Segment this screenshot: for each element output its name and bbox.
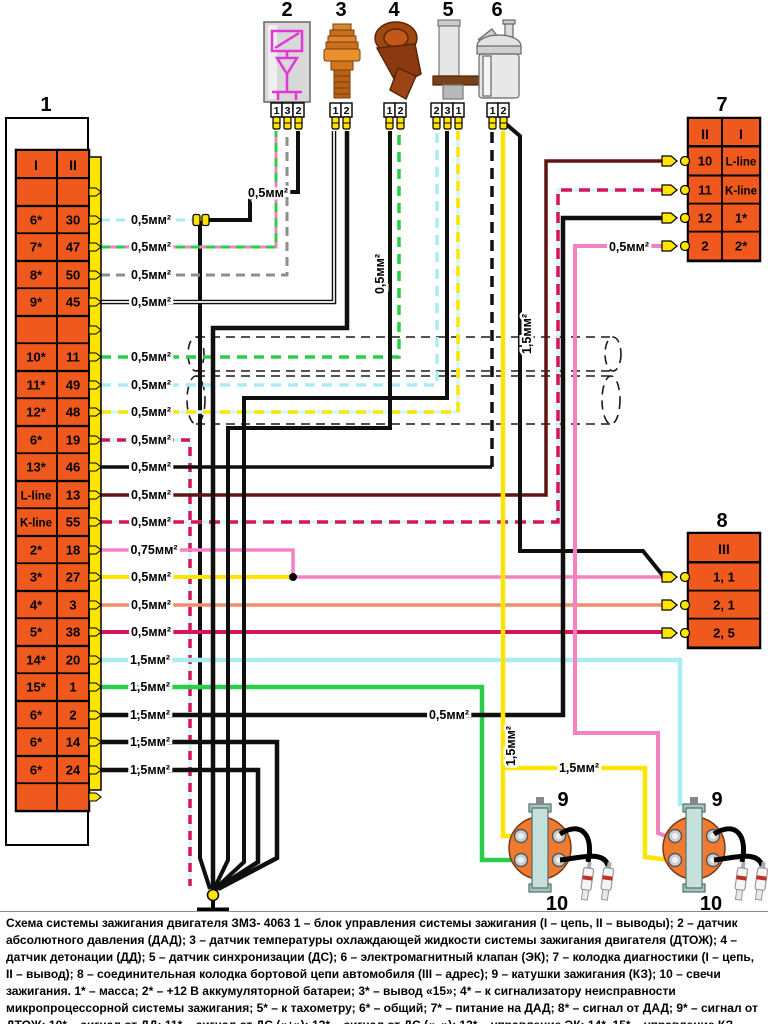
pin-number: 24 (66, 763, 81, 778)
block8-row: 1, 1 (688, 563, 760, 592)
junction-dot (289, 573, 297, 581)
sensor-connector: 231 (431, 103, 464, 129)
wire-gauge-label: 0,75мм² (131, 543, 178, 557)
pin-number: 11 (698, 183, 712, 198)
pin-number: 1 (274, 105, 280, 117)
pl servug-tip (601, 889, 608, 900)
wire-gauge-label: 0,5мм² (131, 268, 171, 282)
pin-number: 45 (66, 295, 80, 310)
pin-number: 30 (66, 213, 80, 228)
wire-block7-pin2-pink (575, 246, 668, 837)
terminal-arrow (662, 628, 677, 638)
block7-row: 121* (688, 204, 760, 233)
pin-number: 14 (66, 735, 81, 750)
terminal-bullet-icon (662, 628, 690, 638)
block1-row: 9*45 (16, 288, 89, 316)
block1-row (16, 316, 89, 344)
block1-row (16, 178, 89, 206)
circuit-label: 6* (30, 763, 43, 778)
block1-row: 6*19 (16, 426, 89, 454)
sensor-dad-image (264, 22, 310, 102)
wire-gauge-label: 0,5мм² (131, 625, 171, 639)
wire-gauge-label: 1,5мм² (130, 680, 170, 694)
ignition-coil (509, 797, 615, 900)
wire-gauge-label: 1,5мм² (130, 708, 170, 722)
circuit-label: K-line (20, 518, 52, 530)
terminal-bullet-icon (662, 185, 690, 195)
coil-knob (536, 797, 544, 804)
pin-number: 47 (66, 240, 80, 255)
circuit-label: 9* (30, 295, 43, 310)
block1-row: 12*48 (16, 398, 89, 426)
block7-rows: III10L-line11K-line121*22* (688, 118, 760, 260)
wire-gauge-label: 0,5мм² (131, 350, 171, 364)
sensor-number: 2 (281, 0, 292, 21)
coil-number: 9 (557, 789, 568, 811)
terminal-ring (681, 242, 690, 251)
sensor-ek-image (477, 20, 521, 98)
sensor-dtozh-image (324, 24, 360, 98)
pin-number: 2 (501, 105, 507, 117)
block1-row: 10*11 (16, 343, 89, 371)
pin-number: 19 (66, 433, 80, 448)
row-cell (16, 178, 89, 206)
pin-number: 1 (69, 680, 76, 695)
wire-gauge-label: 0,5мм² (131, 488, 171, 502)
row-cell (16, 591, 89, 619)
block1-rows: III6*307*478*509*4510*1111*4912*486*1913… (16, 150, 89, 811)
pl servug-tip (755, 889, 762, 900)
wire-gauge-label: 1,5мм² (130, 735, 170, 749)
pin-number: 38 (66, 625, 80, 640)
sensor-ds-image (433, 20, 483, 99)
block1-row: 3*27 (16, 563, 89, 591)
sheath-tube-icon (188, 337, 621, 371)
circuit-label: 4* (30, 598, 43, 613)
ignition-coil (663, 797, 768, 900)
wire-gauge-label: 1,5мм² (130, 653, 170, 667)
terminal-arrow (662, 572, 677, 582)
wire-gauge-label: 1,5мм² (130, 763, 170, 777)
coil-terminal-center (518, 857, 524, 863)
wire-joint-to-ground (200, 221, 210, 889)
wire-s5-ground (215, 131, 447, 889)
wiring-diagram: 1 III6*307*478*509*4510*1111*4912*486*19… (0, 0, 768, 1024)
pin-number: 1 (456, 105, 462, 117)
block1-row: 11*49 (16, 371, 89, 399)
terminal-ring (681, 601, 690, 610)
block1-row: 8*50 (16, 261, 89, 289)
block1-row: 6*14 (16, 728, 89, 756)
circuit-label: 6* (30, 433, 43, 448)
coil-core (532, 808, 548, 888)
circuit-label: 12* (26, 405, 46, 420)
sensor-number: 6 (491, 0, 502, 21)
pin-number: 55 (66, 515, 80, 530)
address-label: 2, 1 (713, 598, 735, 613)
plug-wire (560, 856, 608, 866)
pin-number: 48 (66, 405, 80, 420)
plug-wire (714, 856, 762, 866)
terminal-ring (681, 214, 690, 223)
pin-number: 20 (66, 653, 80, 668)
sensor-connector: 12 (384, 103, 406, 129)
circuit-label: 2* (30, 543, 43, 558)
terminal-arrow (662, 600, 677, 610)
address-label: 2, 5 (713, 626, 735, 641)
block7-col1-header: II (701, 126, 709, 142)
block1-row: L-line13 (16, 481, 89, 509)
terminal-arrow (662, 185, 677, 195)
ignition-coils: 910910 (509, 789, 768, 915)
terminal-ring (681, 629, 690, 638)
wire-gauge-label: 0,5мм² (131, 515, 171, 529)
pin-number: 3 (69, 598, 76, 613)
block1-col2-header: II (69, 157, 77, 173)
wire-gauge-label: 0,5мм² (131, 378, 171, 392)
inline-connector-icon (193, 215, 200, 226)
pin-number: 1 (490, 105, 496, 117)
block1-row: 6*24 (16, 756, 89, 784)
circuit-label: 6* (30, 213, 43, 228)
block1-header-cell (16, 150, 89, 178)
block1-row: 15*1 (16, 673, 89, 701)
circuit-label: 10* (26, 350, 46, 365)
coil-terminal-center (518, 833, 524, 839)
block7-row: 22* (688, 232, 760, 261)
wire-s3-ground (213, 131, 347, 889)
spark-plug-icon (733, 861, 748, 900)
block7-header: III (688, 118, 760, 146)
block1-row: 6*2 (16, 701, 89, 729)
terminal-ring (681, 186, 690, 195)
pin-number: 2 (398, 105, 404, 117)
sensor-connector: 12 (487, 103, 509, 129)
wire-gauge-label: 0,5мм² (609, 240, 649, 254)
wire-gauge-label: 0,5мм² (131, 405, 171, 419)
row-cell (16, 783, 89, 811)
pin-number: 11 (66, 350, 80, 365)
coil-core (686, 808, 702, 888)
wire-2-18 (101, 550, 664, 577)
terminal-bullet-icon (662, 156, 690, 166)
wire-gauge-label: 0,5мм² (131, 213, 171, 227)
terminal-arrow (662, 156, 677, 166)
block8-row: 2, 5 (688, 619, 760, 648)
pin-number: 1 (333, 105, 339, 117)
circuit-label: 6* (30, 735, 43, 750)
block7-row: 10L-line (688, 147, 760, 176)
pin-number: 2 (296, 105, 302, 117)
circuit-label: L-line (726, 157, 757, 169)
address-label: 1, 1 (713, 570, 735, 585)
coil-number: 9 (711, 789, 722, 811)
pin-number: 12 (698, 211, 712, 226)
terminal-arrow (662, 213, 677, 223)
terminal-bullet-icon (662, 213, 690, 223)
wire-gauge-label: 1,5мм² (559, 761, 599, 775)
coil-terminal-center (672, 857, 678, 863)
block1-col1-header: I (34, 157, 38, 173)
coil-knob (690, 797, 698, 804)
pl servug-tip (581, 889, 588, 900)
circuit-label: 3* (30, 570, 43, 585)
spark-plug-icon (599, 861, 614, 900)
caption-text: Схема системы зажигания двигателя ЗМЗ- 4… (0, 911, 768, 1024)
wire-gauge-label: 0,5мм² (131, 460, 171, 474)
wire-gauge-label: 0,5мм² (131, 240, 171, 254)
block7-number: 7 (716, 94, 727, 116)
pin-number: 10 (698, 154, 712, 169)
pin-number: 13 (66, 488, 80, 503)
pin-number: 2 (701, 239, 708, 254)
wire-gauge-label: 1,5мм² (504, 726, 518, 766)
circuit-label: 6* (30, 708, 43, 723)
circuit-label: 8* (30, 268, 43, 283)
block1-row: 5*38 (16, 618, 89, 646)
block1-row: 4*3 (16, 591, 89, 619)
right-block-terminals (662, 156, 690, 638)
pin-number: 1 (387, 105, 393, 117)
block8-col-header: III (718, 541, 730, 557)
terminal-bullet-icon (662, 572, 690, 582)
wire-s4-ground (214, 131, 390, 889)
block1-row: K-line55 (16, 508, 89, 536)
block8-header: III (688, 533, 760, 562)
sensor-connector: 132 (271, 103, 304, 129)
terminal-icon (89, 793, 101, 801)
wire-8-50 (101, 131, 287, 275)
circuit-label: 1* (735, 211, 748, 226)
block1-row: 13*46 (16, 453, 89, 481)
spark-plug-icon (753, 861, 768, 900)
circuit-label: 7* (30, 240, 43, 255)
terminal-bullet-icon (662, 600, 690, 610)
pin-number: 49 (66, 378, 80, 393)
block1-row: 2*18 (16, 536, 89, 564)
circuit-label: 11* (27, 378, 47, 393)
block8-row: 2, 1 (688, 591, 760, 620)
pin-number: 2 (69, 708, 76, 723)
wire-gauge-label: 0,5мм² (131, 433, 171, 447)
terminal-ring (681, 157, 690, 166)
pin-number: 3 (445, 105, 451, 117)
circuit-label: K-line (725, 186, 757, 198)
block7-row: 11K-line (688, 176, 760, 205)
pin-number: 3 (285, 105, 291, 117)
circuit-label: 13* (26, 460, 46, 475)
row-cell (16, 701, 89, 729)
wire-gauge-label: 1,5мм² (520, 314, 534, 354)
sensor-dd-image (375, 22, 421, 99)
row-cell (16, 316, 89, 344)
wire-s2-pin2-ground (202, 131, 298, 220)
circuit-label: L-line (21, 491, 52, 503)
block1-number: 1 (40, 94, 51, 116)
terminal-bullet-icon (662, 241, 690, 251)
wire-gauge-label: 0,5мм² (131, 598, 171, 612)
block1-header: III (16, 150, 89, 178)
pin-number: 2 (344, 105, 350, 117)
block8-rows: III1, 12, 12, 5 (688, 533, 760, 647)
wire-l-line (101, 161, 664, 495)
diagram-canvas: 1 III6*307*478*509*4510*1111*4912*486*19… (0, 0, 768, 1024)
pin-number: 2 (434, 105, 440, 117)
block8-number: 8 (716, 510, 727, 532)
pin-number: 18 (66, 543, 80, 558)
circuit-label: 5* (30, 625, 43, 640)
sensor-number: 4 (388, 0, 400, 21)
pin-number: 46 (66, 460, 80, 475)
pin-number: 27 (66, 570, 80, 585)
block1-row (16, 783, 89, 811)
sensor-number: 3 (335, 0, 346, 21)
cell (688, 232, 760, 261)
wire-gauge-label: 0,5мм² (429, 708, 469, 722)
block1-row: 14*20 (16, 646, 89, 674)
block1-row: 7*47 (16, 233, 89, 261)
wire-gauge-label: 0,5мм² (248, 186, 288, 200)
circuit-label: 14* (26, 653, 46, 668)
sensor-number: 5 (442, 0, 453, 21)
block1-row: 6*30 (16, 206, 89, 234)
terminal-ring (681, 573, 690, 582)
block7-col2-header: I (739, 126, 743, 142)
inline-connector-icon (202, 215, 209, 226)
pin-number: 50 (66, 268, 80, 283)
ground-symbol-icon (197, 890, 229, 911)
terminal-arrow (662, 241, 677, 251)
pl servug-tip (735, 889, 742, 900)
sensor-connector: 12 (330, 103, 352, 129)
circuit-label: 15* (26, 680, 46, 695)
wire-gauge-label: 0,5мм² (131, 570, 171, 584)
coil-terminal-center (672, 833, 678, 839)
spark-plug-icon (579, 861, 594, 900)
circuit-label: 2* (735, 239, 748, 254)
wire-gauge-label: 0,5мм² (131, 295, 171, 309)
cell (688, 118, 760, 146)
wire-gauge-label: 0,5мм² (373, 254, 387, 294)
